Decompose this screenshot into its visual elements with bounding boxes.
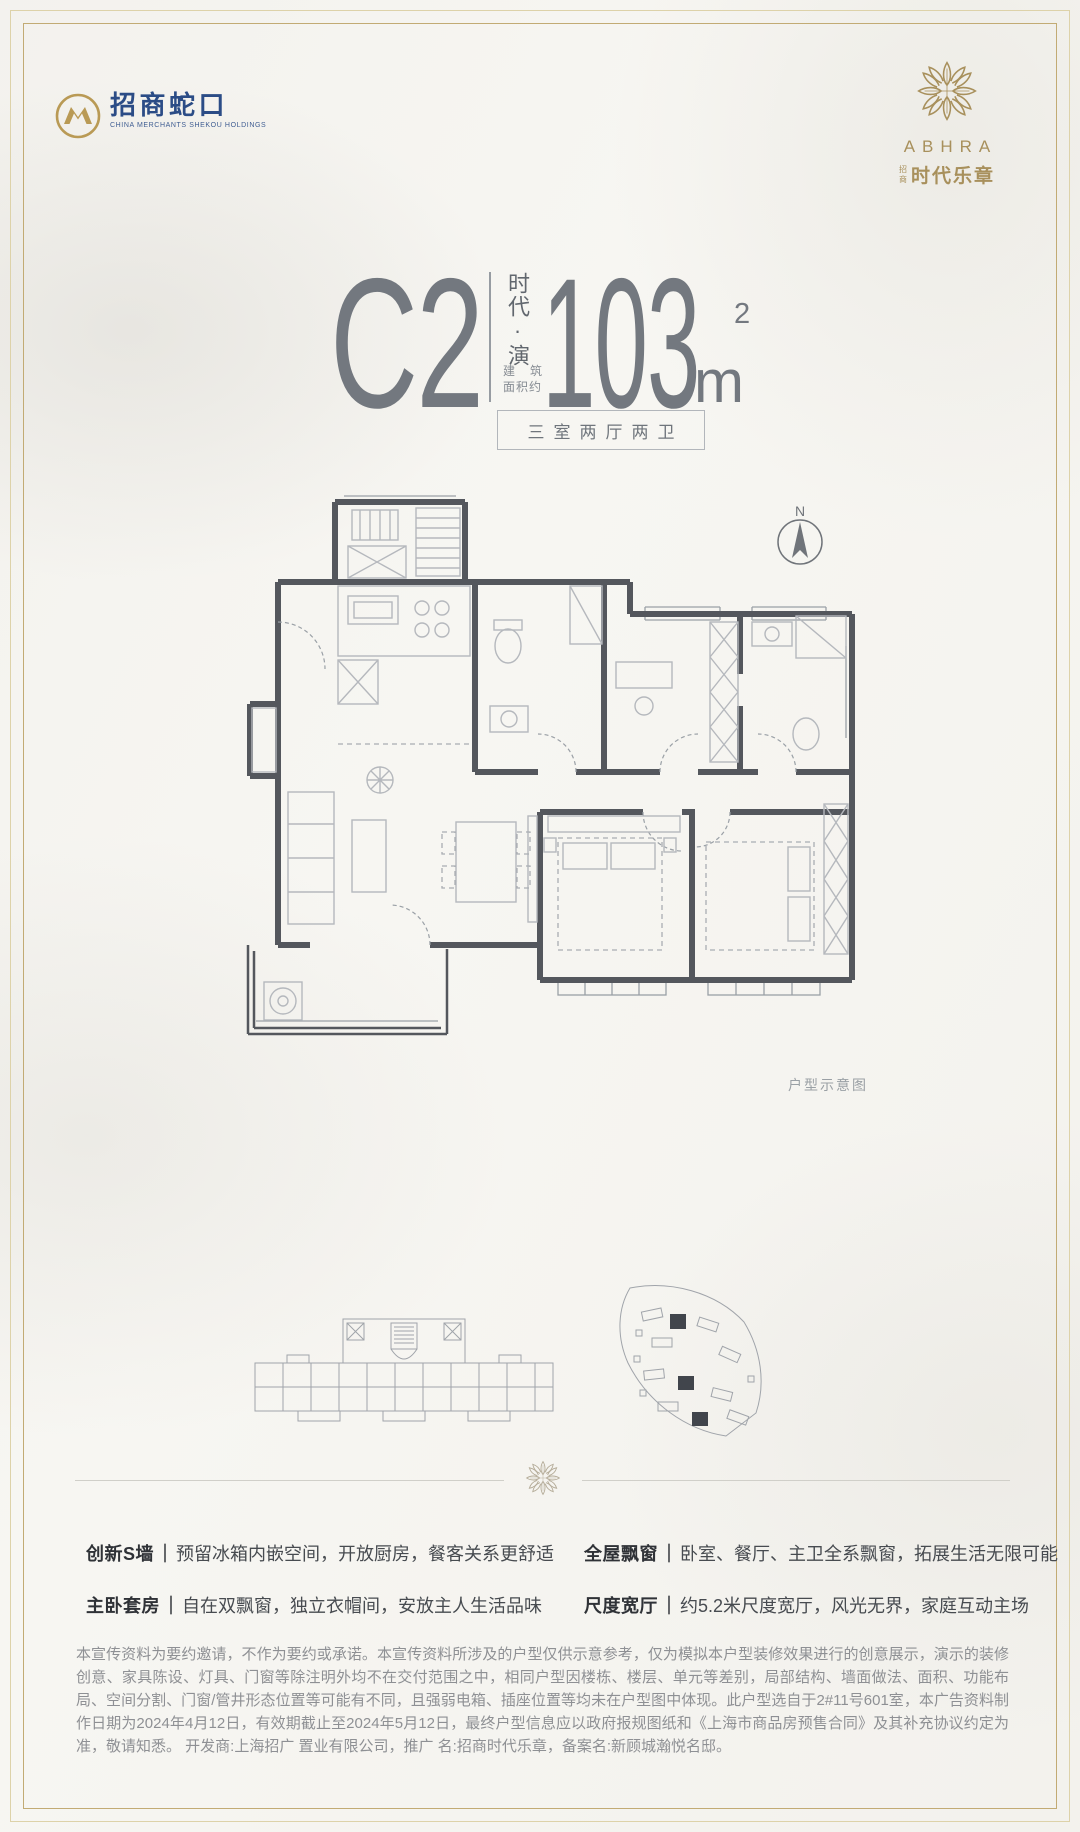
- feature-separator: ｜: [162, 1596, 180, 1616]
- title-divider: [489, 272, 491, 402]
- floor-plan-caption: 户型示意图: [788, 1075, 868, 1095]
- developer-name-en: CHINA MERCHANTS SHEKOU HOLDINGS: [110, 122, 266, 129]
- feature-item: 主卧套房｜自在双飘窗，独立衣帽间，安放主人生活品味: [86, 1592, 554, 1618]
- divider-emblem-icon: [524, 1457, 562, 1504]
- project-name-cn: 时代乐章: [911, 161, 995, 188]
- project-brand-name: ABHRA: [897, 137, 998, 157]
- floor-plan: N: [240, 492, 856, 1052]
- feature-text: 预留冰箱内嵌空间，开放厨房，餐客关系更舒适: [176, 1544, 554, 1564]
- area-unit: m: [694, 352, 744, 412]
- feature-separator: ｜: [156, 1544, 174, 1564]
- project-emblem-icon: [914, 56, 980, 131]
- feature-item: 尺度宽厅｜约5.2米尺度宽厅，风光无界，家庭互动主场: [584, 1592, 1058, 1618]
- area-label-line2: 面积约: [503, 380, 542, 394]
- north-indicator: N: [778, 503, 822, 564]
- developer-logo-icon: [54, 92, 102, 140]
- divider-left-line: [75, 1480, 504, 1481]
- feature-text: 卧室、餐厅、主卫全系飘窗，拓展生活无限可能: [680, 1544, 1058, 1564]
- project-logo: ABHRA 招商 时代乐章: [872, 56, 1022, 188]
- feature-separator: ｜: [660, 1544, 678, 1564]
- project-name-prefix: 招商: [899, 165, 908, 183]
- feature-item: 全屋飘窗｜卧室、餐厅、主卫全系飘窗，拓展生活无限可能: [584, 1540, 1058, 1566]
- feature-label: 创新S墙: [86, 1544, 154, 1564]
- developer-logo: 招商蛇口 CHINA MERCHANTS SHEKOU HOLDINGS: [54, 92, 266, 140]
- walls-group: [250, 502, 852, 980]
- feature-item: 创新S墙｜预留冰箱内嵌空间，开放厨房，餐客关系更舒适: [86, 1540, 554, 1566]
- windows-group: [256, 496, 856, 1021]
- unit-code: C2: [330, 252, 482, 437]
- divider-right-line: [582, 1480, 1011, 1481]
- north-label: N: [795, 503, 805, 519]
- furniture-group: [264, 586, 848, 1020]
- feature-text: 约5.2米尺度宽厅，风光无界，家庭互动主场: [680, 1596, 1029, 1616]
- feature-separator: ｜: [660, 1596, 678, 1616]
- disclaimer-text: 本宣传资料为要约邀请，不作为要约或承诺。本宣传资料所涉及的户型仅供示意参考，仅为…: [76, 1644, 1009, 1759]
- rooms-label-box: 三室两厅两卫: [497, 410, 705, 450]
- feature-label: 尺度宽厅: [584, 1596, 658, 1616]
- features-list: 创新S墙｜预留冰箱内嵌空间，开放厨房，餐客关系更舒适 全屋飘窗｜卧室、餐厅、主卫…: [86, 1540, 1012, 1618]
- feature-label: 主卧套房: [86, 1596, 160, 1616]
- area-superscript: 2: [734, 298, 750, 331]
- area-label-char1: 建: [503, 364, 516, 380]
- feature-text: 自在双飘窗，独立衣帽间，安放主人生活品味: [182, 1596, 542, 1616]
- feature-label: 全屋飘窗: [584, 1544, 658, 1564]
- series-name-vertical: 时代·演: [501, 272, 533, 367]
- poster-page: 招商蛇口 CHINA MERCHANTS SHEKOU HOLDINGS ABH…: [0, 0, 1080, 1832]
- key-plan: [243, 1303, 565, 1431]
- site-plan: [600, 1278, 776, 1442]
- floor-plan-svg: N: [240, 492, 856, 1052]
- section-divider: [75, 1458, 1010, 1502]
- rooms-label: 三室两厅两卫: [519, 418, 684, 443]
- highlighted-buildings: [670, 1314, 708, 1426]
- developer-name-cn: 招商蛇口: [110, 92, 266, 119]
